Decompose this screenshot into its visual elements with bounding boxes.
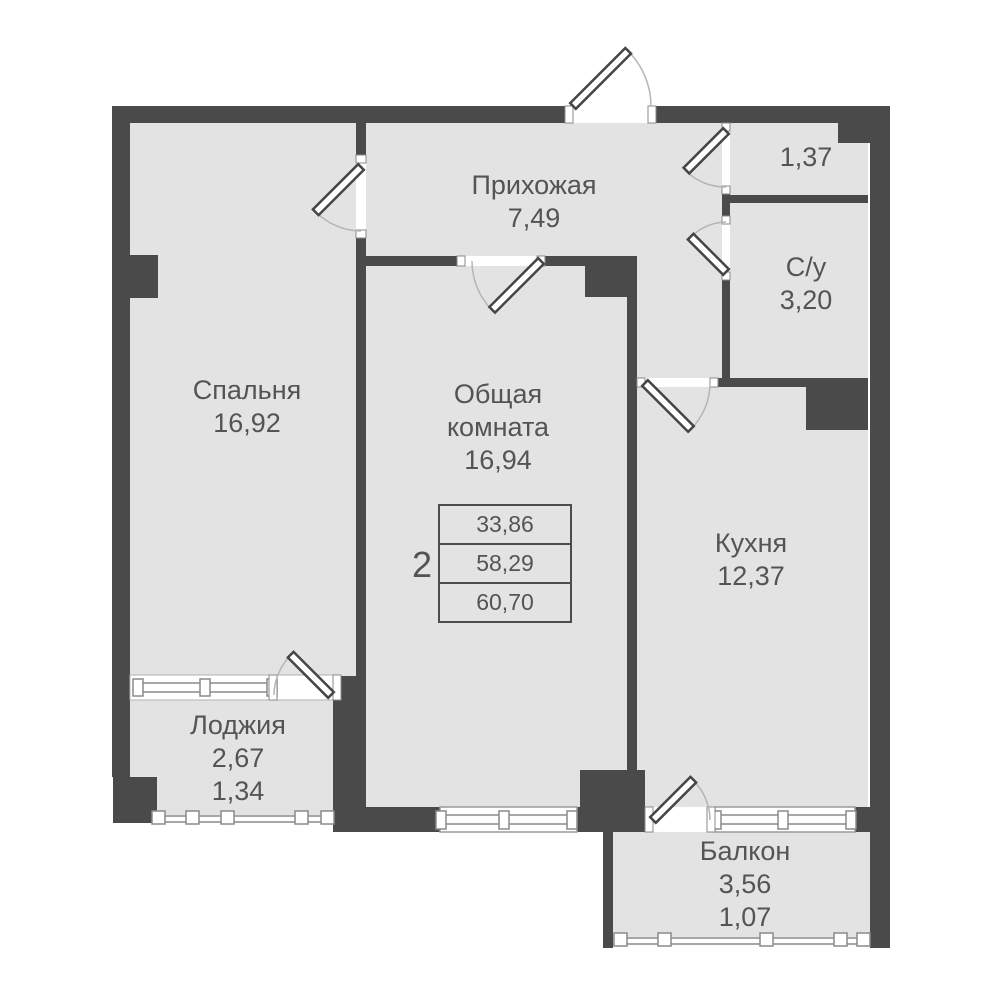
living-area-total: 33,86: [440, 506, 570, 543]
storage-label: 1,37: [706, 141, 906, 174]
hallway-label: Прихожая 7,49: [434, 169, 634, 235]
entrance-door-leaf: [570, 48, 631, 109]
kitchen-name: Кухня: [651, 527, 851, 560]
kitchen-area: 12,37: [651, 560, 851, 593]
hallway-area: 7,49: [434, 202, 634, 235]
rooms-count: 2: [398, 544, 432, 586]
area-table: 33,86 58,29 60,70: [438, 504, 572, 623]
balcony-name: Балкон: [645, 835, 845, 868]
balcony-label: Балкон 3,56 1,07: [645, 835, 845, 934]
bedroom-area: 16,92: [147, 407, 347, 440]
floor-plan: Прихожая 7,49 1,37 С/у 3,20 Спальня 16,9…: [0, 0, 1000, 1000]
kitchen-floor: [637, 387, 868, 807]
bedroom-name: Спальня: [147, 374, 347, 407]
bathroom-name: С/у: [706, 251, 906, 284]
area-summary: 2 33,86 58,29 60,70: [438, 504, 572, 623]
living-window-icon: [436, 807, 577, 832]
kitchen-window-icon: [711, 807, 856, 832]
total-area: 60,70: [440, 582, 570, 621]
loggia-band: [130, 675, 333, 700]
loggia-name: Лоджия: [138, 709, 338, 742]
entrance-opening: [573, 106, 648, 123]
balcony-reduced-area: 1,07: [645, 901, 845, 934]
loggia-reduced-area: 1,34: [138, 775, 338, 808]
hallway-name: Прихожая: [434, 169, 634, 202]
loggia-label: Лоджия 2,67 1,34: [138, 709, 338, 808]
living-area: 16,94: [398, 444, 598, 477]
bedroom-label: Спальня 16,92: [147, 374, 347, 440]
living-name-line1: Общая: [398, 378, 598, 411]
bathroom-area: 3,20: [706, 284, 906, 317]
balcony-area: 3,56: [645, 868, 845, 901]
storage-area: 1,37: [706, 141, 906, 174]
apartment-area: 58,29: [440, 543, 570, 582]
living-door-opening: [465, 256, 537, 266]
bathroom-label: С/у 3,20: [706, 251, 906, 317]
loggia-area: 2,67: [138, 742, 338, 775]
kitchen-label: Кухня 12,37: [651, 527, 851, 593]
living-label: Общая комната 16,94: [398, 378, 598, 477]
living-name-line2: комната: [398, 411, 598, 444]
